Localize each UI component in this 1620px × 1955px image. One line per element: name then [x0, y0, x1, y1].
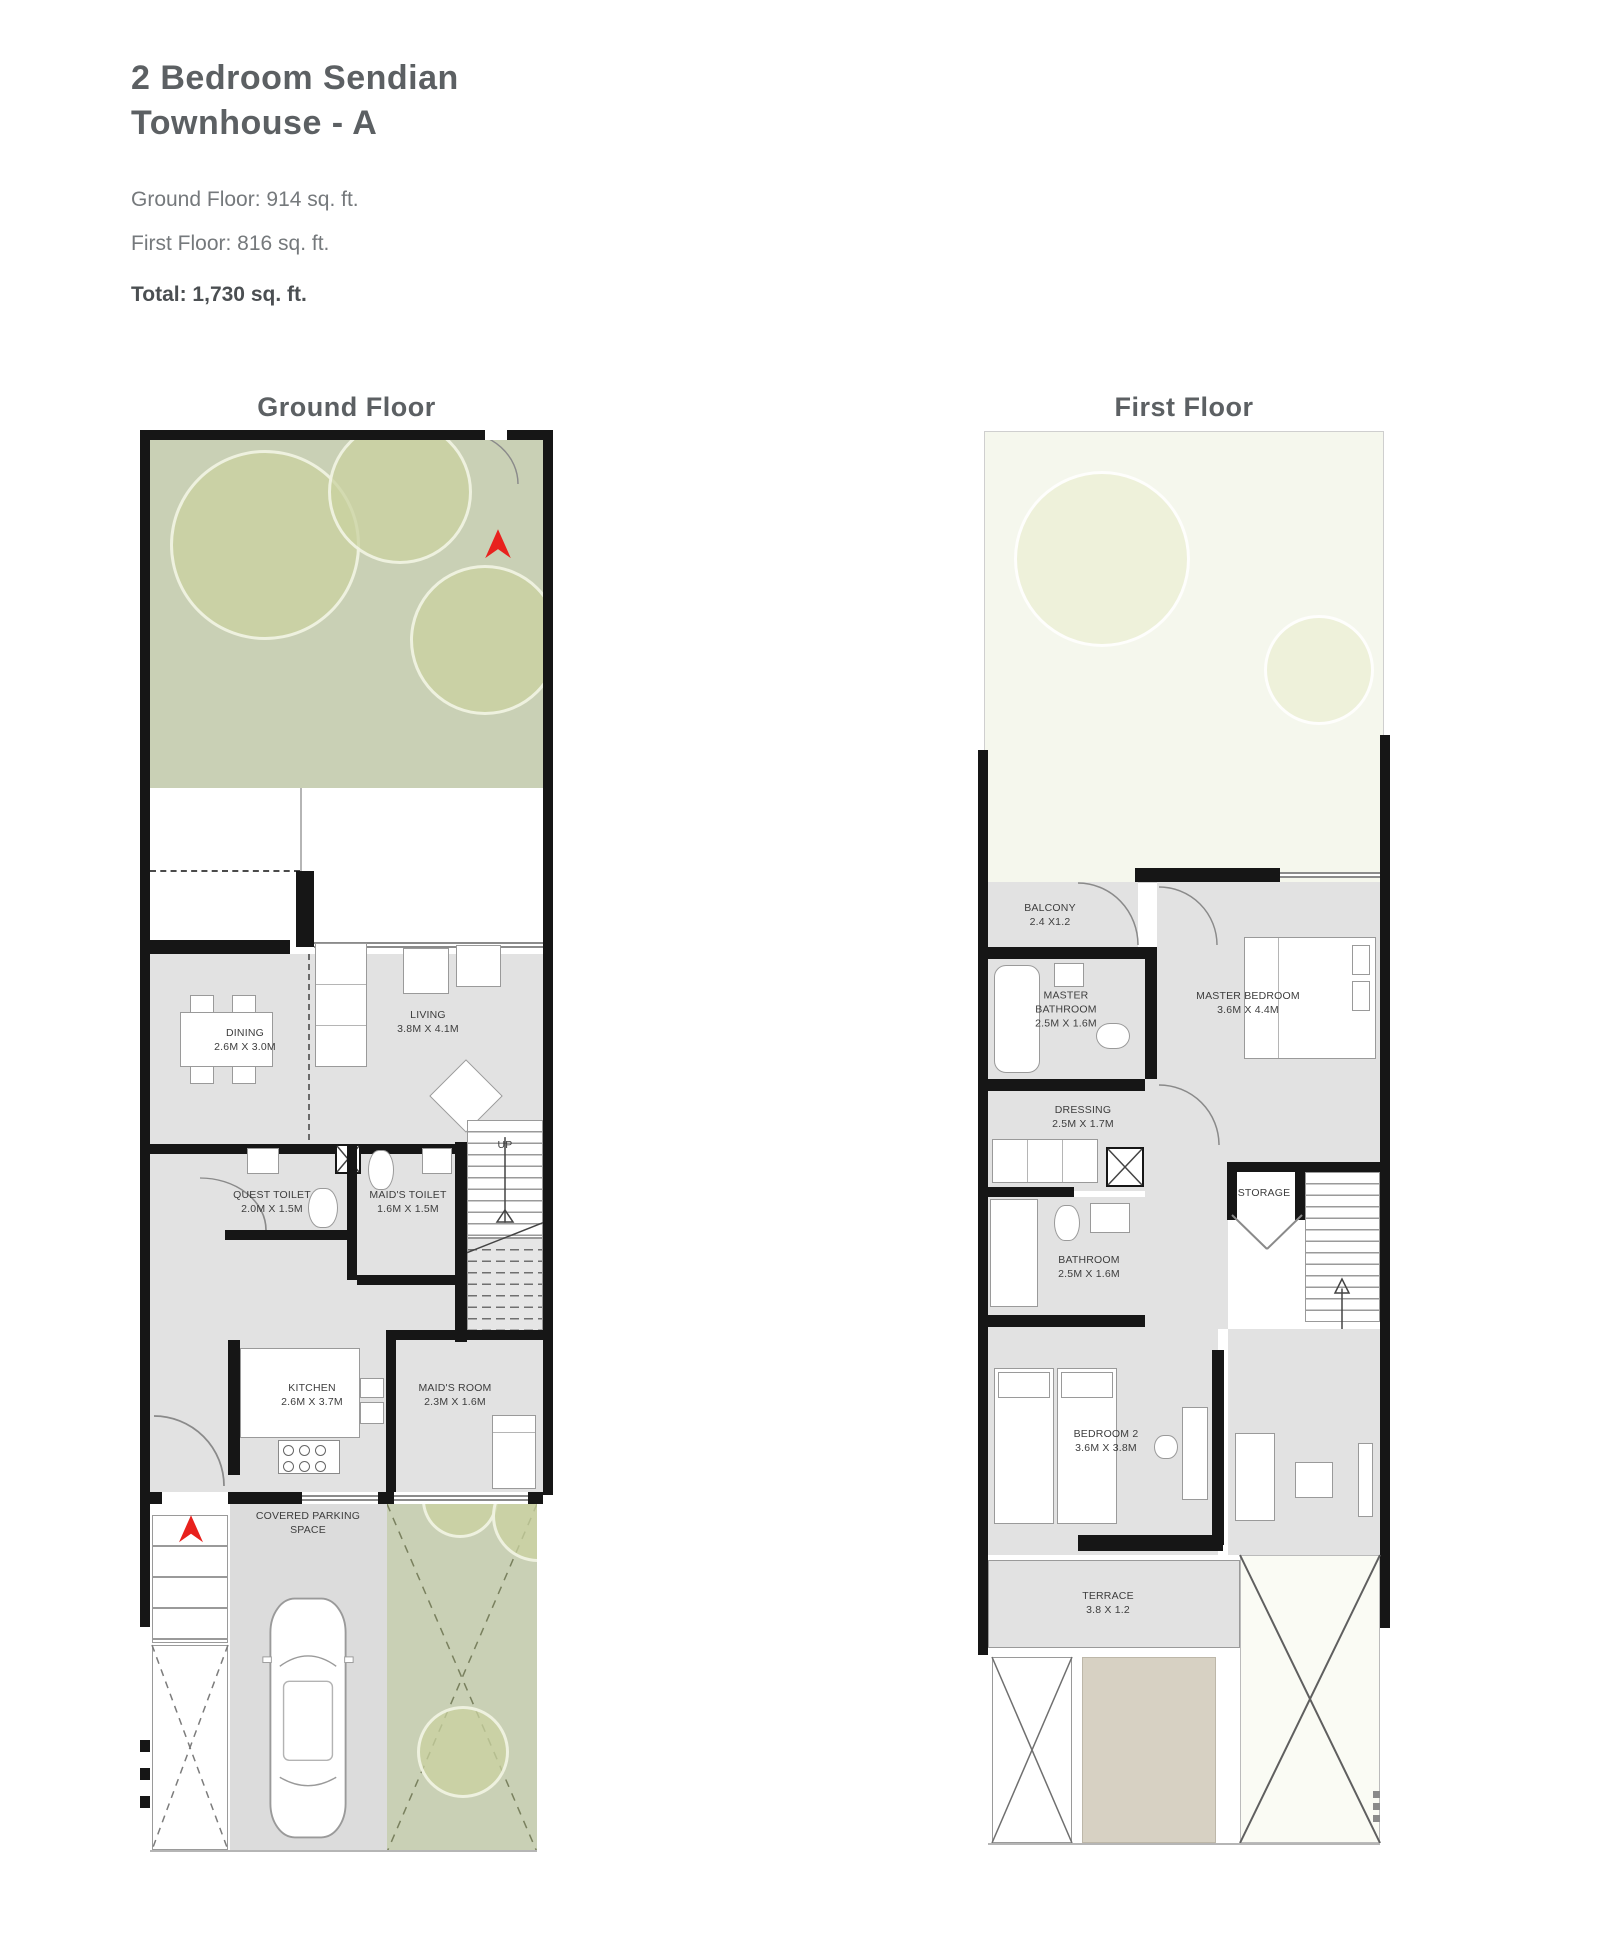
wall — [150, 940, 290, 954]
wall — [528, 1492, 543, 1504]
wall — [386, 1340, 396, 1492]
wall — [140, 1796, 150, 1808]
wardrobe-icon — [992, 1139, 1098, 1183]
stove-icon — [278, 1440, 340, 1474]
wall — [225, 1230, 357, 1240]
wall — [1145, 947, 1157, 1079]
dining-chair-icon — [232, 995, 256, 1013]
wall — [978, 750, 988, 1655]
storage-label: STORAGE — [1229, 1186, 1299, 1200]
side-table-icon — [1295, 1462, 1333, 1498]
wall — [984, 1187, 1074, 1197]
kitchen-appliance-icon — [360, 1402, 384, 1424]
detail-marker — [1373, 1803, 1380, 1810]
tree-icon — [1264, 615, 1374, 725]
wall — [296, 871, 314, 947]
wardrobe-divider — [1062, 1140, 1063, 1182]
first-floor-plan: BALCONY 2.4 X1.2 MASTER BATHROOM 2.5M X … — [978, 425, 1390, 1857]
north-arrow-icon — [482, 526, 514, 562]
armchair-icon — [456, 945, 501, 987]
wall — [386, 1330, 543, 1340]
first-floor-title: First Floor — [978, 392, 1390, 423]
wall — [228, 1492, 302, 1504]
terrace-label: TERRACE 3.8 X 1.2 — [1058, 1589, 1158, 1617]
kitchen-label: KITCHEN 2.6M X 3.7M — [267, 1381, 357, 1409]
bedroom-2-label: BEDROOM 2 3.6M X 3.8M — [1051, 1427, 1161, 1455]
car-icon — [261, 1588, 355, 1848]
wall — [378, 1492, 394, 1504]
skylight-x-icon — [992, 1657, 1072, 1843]
stair-direction-line — [467, 1120, 543, 1334]
dressing-label: DRESSING 2.5M X 1.7M — [1035, 1103, 1131, 1131]
sofa-icon — [1235, 1433, 1275, 1521]
living-label: LIVING 3.8M X 4.1M — [373, 1008, 483, 1036]
bed-pillow-line — [493, 1432, 535, 1433]
wall — [455, 1142, 467, 1342]
balcony-label: BALCONY 2.4 X1.2 — [995, 901, 1105, 929]
shower-icon — [990, 1199, 1038, 1307]
wall — [357, 1275, 467, 1285]
parking-label: COVERED PARKING SPACE — [243, 1509, 373, 1537]
tree-icon — [410, 565, 543, 715]
maids-room-label: MAID'S ROOM 2.3M X 1.6M — [405, 1381, 505, 1409]
toilet-icon — [308, 1188, 338, 1228]
pillow-icon — [998, 1372, 1050, 1398]
total-area-text: Total: 1,730 sq. ft. — [131, 283, 307, 307]
sink-icon — [1054, 963, 1084, 987]
sofa-cushion-line — [316, 984, 366, 985]
quest-toilet-label: QUEST TOILET 2.0M X 1.5M — [233, 1188, 311, 1216]
bedroom-door-arc-icon — [1159, 887, 1217, 945]
wall — [1380, 735, 1390, 1628]
stairs-up-label: UP — [498, 1138, 513, 1152]
wall — [1135, 868, 1280, 882]
title-line-1: 2 Bedroom Sendian — [131, 59, 459, 97]
sink-icon — [247, 1148, 279, 1174]
pillow-icon — [1352, 981, 1370, 1011]
plan-bottom-line — [988, 1843, 1380, 1845]
desk-icon — [1182, 1407, 1208, 1500]
landscape-x-icon — [387, 1504, 537, 1852]
master-bedroom-label: MASTER BEDROOM 3.6M X 4.4M — [1178, 989, 1318, 1017]
garden-area — [150, 440, 543, 788]
wall — [150, 1144, 466, 1154]
maids-room-window — [394, 1495, 528, 1501]
wall-gap — [485, 430, 507, 440]
pillow-icon — [1061, 1372, 1113, 1398]
wall — [140, 430, 150, 1627]
detail-marker — [1373, 1791, 1380, 1798]
console-icon — [1358, 1443, 1373, 1517]
kitchen-window — [302, 1495, 378, 1501]
sink-icon — [1090, 1203, 1130, 1233]
dining-living-divider — [308, 954, 310, 1150]
dining-chair-icon — [190, 1066, 214, 1084]
floor-plan-document: { "header": { "title_line1": "2 Bedroom … — [0, 0, 1620, 1955]
armchair-icon — [403, 948, 449, 994]
wall — [984, 1079, 1145, 1091]
pillow-icon — [1352, 945, 1370, 975]
wall — [1227, 1162, 1380, 1172]
master-bathroom-label: MASTER BATHROOM 2.5M X 1.6M — [1023, 989, 1109, 1032]
dining-chair-icon — [190, 995, 214, 1013]
plan-bottom-line — [150, 1850, 537, 1852]
wall — [984, 947, 1145, 959]
ground-floor-plan: ← ← DINING 2.6M X 3.0M LIVING 3.8M X 4.1… — [140, 430, 553, 1857]
toilet-icon — [368, 1150, 394, 1190]
kitchen-appliance-icon — [360, 1378, 384, 1398]
ground-floor-title: Ground Floor — [140, 392, 553, 423]
wall — [543, 430, 553, 1495]
sink-icon — [422, 1148, 452, 1174]
page-title: 2 Bedroom Sendian Townhouse - A — [131, 56, 651, 146]
patio-dashed-line — [150, 870, 300, 872]
tree-icon — [417, 1706, 509, 1798]
patio-divider — [300, 788, 302, 872]
title-line-2: Townhouse - A — [131, 104, 377, 142]
roof-area — [1082, 1657, 1216, 1843]
tree-icon — [1014, 471, 1190, 647]
landscape-area — [387, 1504, 537, 1852]
wall — [140, 1768, 150, 1780]
trellis-x-icon — [152, 1645, 228, 1850]
master-bedroom-window — [1280, 872, 1380, 878]
garden-view-below — [984, 431, 1384, 883]
wall — [228, 1340, 240, 1475]
ground-floor-area-text: Ground Floor: 914 sq. ft. — [131, 188, 359, 212]
wall — [347, 1144, 357, 1280]
hall-door-arc-icon — [1159, 1085, 1219, 1145]
wall — [1212, 1350, 1224, 1545]
dining-chair-icon — [232, 1066, 256, 1084]
storage-doors-icon — [1232, 1215, 1302, 1249]
wardrobe-divider — [1027, 1140, 1028, 1182]
sofa-icon — [315, 943, 367, 1067]
entrance-door-arc-icon — [154, 1416, 224, 1486]
wall — [984, 1315, 1145, 1327]
sofa-cushion-line — [316, 1025, 366, 1026]
detail-marker — [1373, 1815, 1380, 1822]
shaft-x-icon — [1108, 1149, 1142, 1185]
wall — [150, 1492, 162, 1504]
bathroom-label: BATHROOM 2.5M X 1.6M — [1044, 1253, 1134, 1281]
toilet-icon — [1054, 1205, 1080, 1241]
bed-icon — [492, 1415, 536, 1489]
entry-arrow-icon — [176, 1512, 206, 1546]
maids-toilet-label: MAID'S TOILET 1.6M X 1.5M — [369, 1188, 447, 1216]
open-to-below-x-icon — [1240, 1555, 1380, 1843]
wall — [140, 1740, 150, 1752]
first-floor-area-text: First Floor: 816 sq. ft. — [131, 232, 329, 256]
wall — [1078, 1535, 1223, 1551]
dining-label: DINING 2.6M X 3.0M — [200, 1026, 290, 1054]
